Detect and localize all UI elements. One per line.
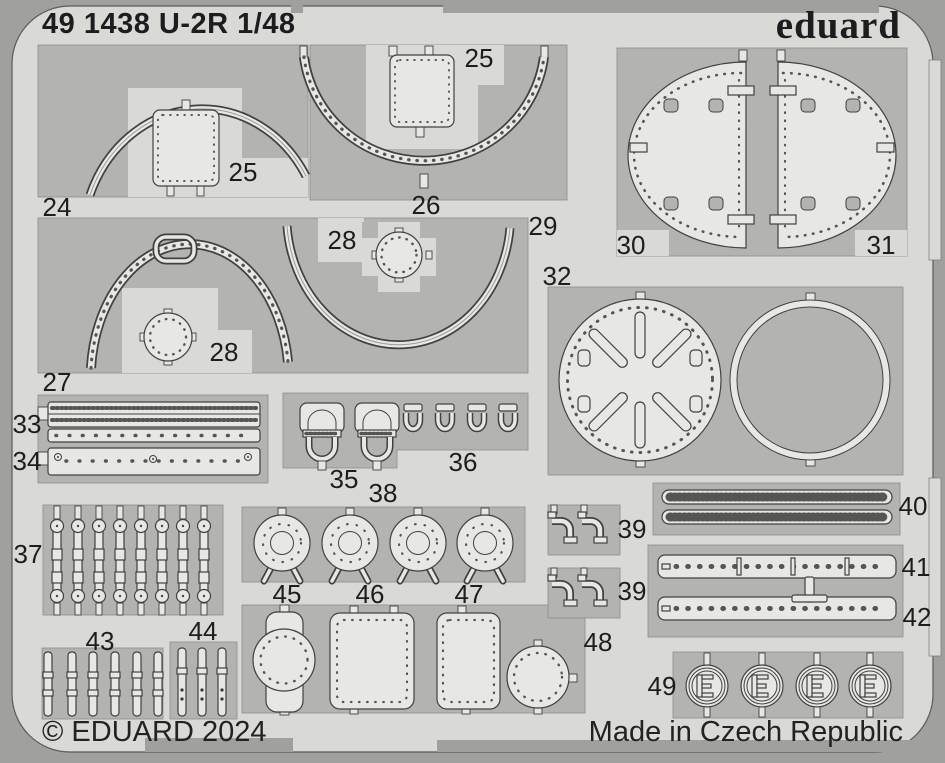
part-46-panel [330, 606, 414, 714]
fret-scan: 2425252627282829303132333435363738393940… [0, 0, 945, 763]
part-label-34: 34 [13, 446, 42, 476]
part-label-39: 39 [618, 576, 647, 606]
link [156, 506, 169, 615]
origin-text: Made in Czech Republic [589, 716, 903, 749]
part-label-44: 44 [189, 616, 218, 646]
part-label-28: 28 [328, 225, 357, 255]
part-label-46: 46 [356, 579, 385, 609]
part-label-39: 39 [618, 514, 647, 544]
part-label-30: 30 [617, 230, 646, 260]
part-25-panel-a [153, 100, 219, 196]
strap [177, 648, 187, 716]
part-label-32: 32 [543, 261, 572, 291]
link [198, 506, 211, 615]
part-label-28: 28 [210, 337, 239, 367]
part-label-38: 38 [369, 478, 398, 508]
link [51, 506, 64, 615]
part-label-45: 45 [273, 579, 302, 609]
part-label-33: 33 [13, 409, 42, 439]
part-label-26: 26 [412, 190, 441, 220]
part-label-35: 35 [330, 464, 359, 494]
sheet-title: 49 1438 U-2R 1/48 [42, 8, 296, 41]
link [114, 506, 127, 615]
part-label-31: 31 [867, 230, 896, 260]
strap [217, 648, 227, 716]
part-label-42: 42 [903, 602, 932, 632]
part-label-47: 47 [455, 579, 484, 609]
part-label-37: 37 [14, 539, 43, 569]
strap [43, 652, 53, 716]
part-label-48: 48 [584, 627, 613, 657]
fret-artwork: 2425252627282829303132333435363738393940… [0, 0, 945, 763]
strap [132, 652, 142, 716]
part-label-25: 25 [465, 43, 494, 73]
part-label-49: 49 [648, 671, 677, 701]
copyright-text: © EDUARD 2024 [42, 716, 266, 749]
part-label-24: 24 [43, 192, 72, 222]
link [135, 506, 148, 615]
link [93, 506, 106, 615]
part-label-27: 27 [43, 367, 72, 397]
strap [153, 652, 163, 716]
part-34-strip [38, 448, 260, 475]
part-label-36: 36 [449, 447, 478, 477]
part-47-panel [437, 606, 500, 714]
part-25-panel-b [389, 46, 454, 137]
part-44-straps [177, 648, 227, 716]
link [72, 506, 85, 615]
strap [88, 652, 98, 716]
part-33-strips [38, 402, 260, 442]
brand-logo: eduard [776, 3, 901, 48]
part-42-strip [658, 597, 896, 620]
strap [67, 652, 77, 716]
strap [197, 648, 207, 716]
part-label-25: 25 [229, 157, 258, 187]
link [177, 506, 190, 615]
part-label-43: 43 [86, 626, 115, 656]
strap [110, 652, 120, 716]
part-label-40: 40 [899, 491, 928, 521]
part-label-29: 29 [529, 211, 558, 241]
part-label-41: 41 [902, 552, 931, 582]
part-41-strip [658, 555, 896, 578]
